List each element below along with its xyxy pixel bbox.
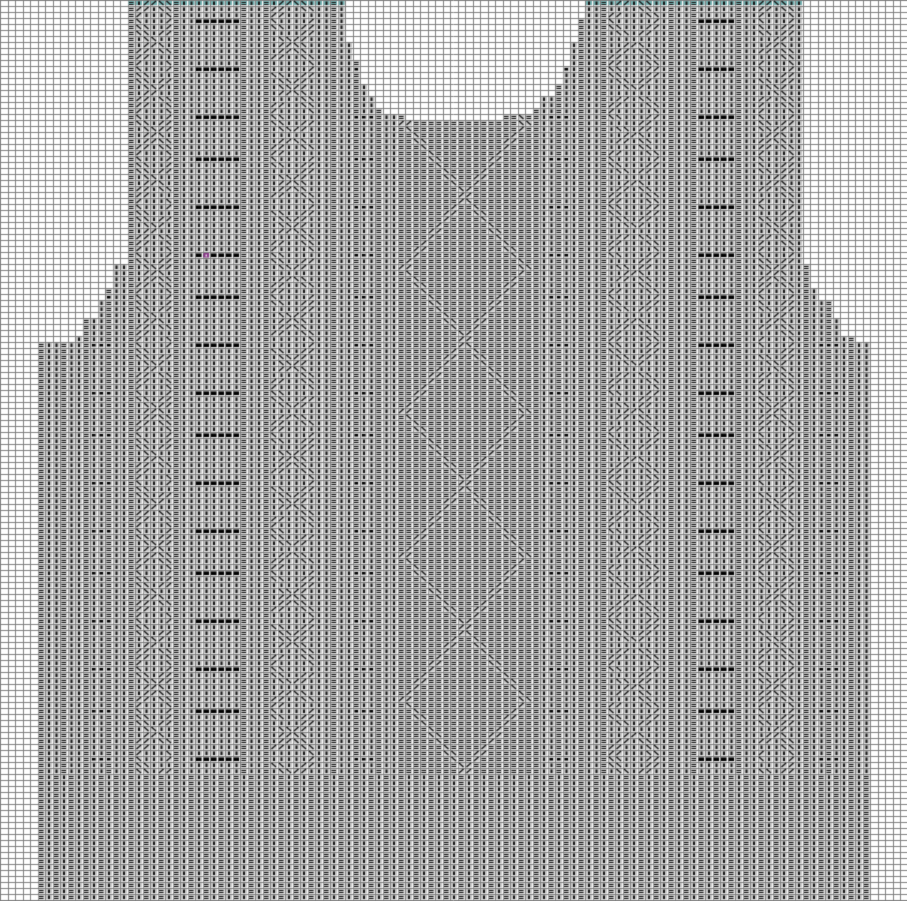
knitting-chart: [0, 0, 907, 901]
knitting-chart-canvas[interactable]: [0, 0, 907, 901]
